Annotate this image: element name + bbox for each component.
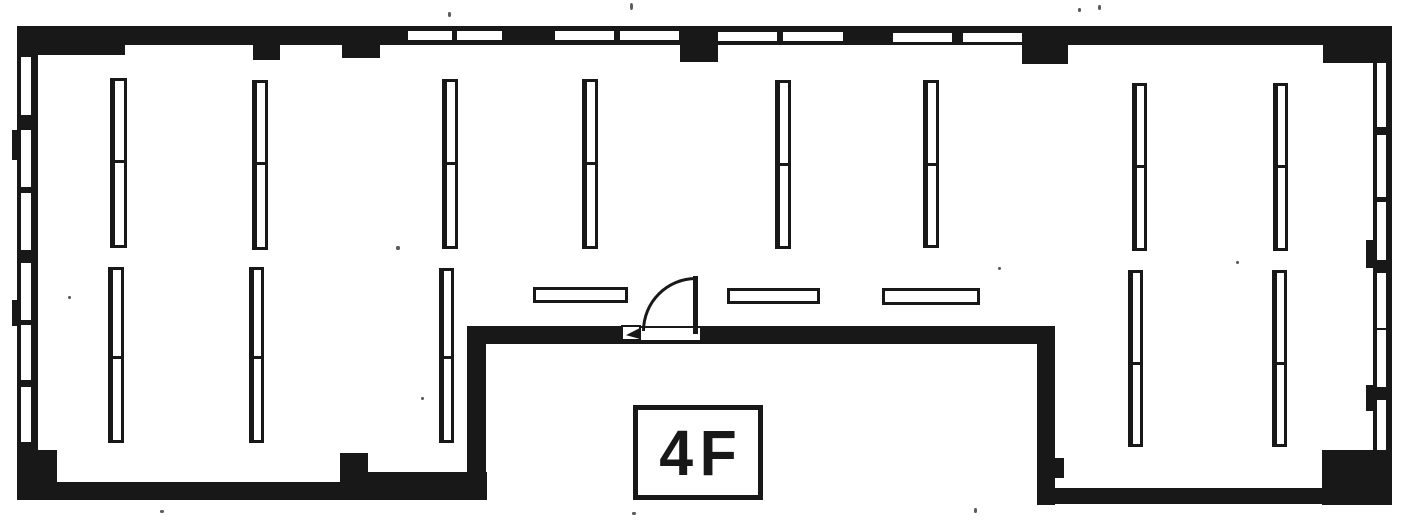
window-mullion-bar <box>439 268 454 443</box>
scan-speckle <box>396 246 400 250</box>
wall-blob <box>1366 385 1374 411</box>
partition-bar <box>727 288 820 304</box>
wall-segment <box>17 26 1392 45</box>
scan-speckle <box>421 397 424 400</box>
scan-speckle <box>68 296 71 299</box>
column-pillar <box>253 45 280 60</box>
window-slot <box>783 32 843 41</box>
mullion-divider <box>775 163 791 166</box>
wall-blob <box>12 130 18 160</box>
wall-blob <box>1366 240 1374 268</box>
window-slot <box>718 32 777 41</box>
scan-speckle <box>1098 5 1101 10</box>
wall-segment <box>1050 458 1064 478</box>
scan-speckle <box>632 512 636 515</box>
scan-speckle <box>630 3 633 10</box>
door-arc <box>642 277 696 331</box>
window-mullion-bar <box>1132 83 1147 251</box>
window-mullion-bar <box>252 80 268 250</box>
window-mullion-bar <box>442 79 458 249</box>
wall-segment <box>467 326 1055 344</box>
column-pillar <box>680 45 718 62</box>
window-slot <box>21 325 31 380</box>
window-slot <box>1377 202 1386 260</box>
window-mullion-bar <box>1272 270 1287 447</box>
wall-segment <box>467 328 486 500</box>
wall-blob <box>12 300 18 326</box>
mullion-divider <box>1132 165 1147 168</box>
mullion-divider <box>110 160 127 163</box>
mullion-divider <box>1273 165 1288 168</box>
window-mullion-bar <box>923 80 939 248</box>
window-slot <box>457 31 502 40</box>
mullion-divider <box>582 162 598 165</box>
mullion-divider <box>249 356 264 359</box>
wall-segment <box>1037 488 1392 504</box>
partition-bar <box>533 287 628 303</box>
window-slot <box>620 31 679 40</box>
scan-speckle <box>160 510 164 513</box>
window-slot <box>408 31 452 40</box>
window-slot <box>1377 135 1386 197</box>
scan-speckle <box>1236 261 1239 264</box>
mullion-divider <box>439 356 454 359</box>
mullion-divider <box>923 163 939 166</box>
mullion-divider <box>442 162 458 165</box>
window-slot <box>21 263 31 320</box>
window-mullion-bar <box>249 267 264 443</box>
window-slot <box>893 33 952 42</box>
mullion-divider <box>1128 362 1143 365</box>
mullion-divider <box>1272 362 1287 365</box>
wall-segment <box>1323 26 1392 63</box>
wall-segment <box>340 453 368 500</box>
window-slot <box>1377 400 1386 450</box>
window-slot <box>1377 63 1386 127</box>
window-slot <box>21 387 31 442</box>
window-slot <box>21 57 31 115</box>
window-slot <box>1377 330 1386 387</box>
column-pillar <box>342 45 380 58</box>
window-mullion-bar <box>1128 270 1143 447</box>
mullion-divider <box>252 162 268 165</box>
scan-speckle <box>998 267 1001 270</box>
window-mullion-bar <box>1273 83 1288 251</box>
window-mullion-bar <box>108 267 124 443</box>
scan-speckle <box>1078 8 1081 12</box>
window-slot <box>963 33 1022 42</box>
floor-plan-canvas: 4F <box>0 0 1413 526</box>
window-slot <box>21 193 31 250</box>
partition-bar <box>882 288 980 305</box>
scan-speckle <box>448 12 451 17</box>
window-slot <box>555 31 614 40</box>
column-pillar <box>1022 45 1068 64</box>
wall-segment <box>17 26 125 55</box>
wall-segment <box>1037 330 1055 505</box>
floor-label-box: 4F <box>633 405 763 500</box>
window-mullion-bar <box>775 80 791 249</box>
window-mullion-bar <box>110 78 127 248</box>
floor-label-text: 4F <box>659 421 743 485</box>
window-mullion-bar <box>582 79 598 249</box>
window-slot <box>1377 273 1386 328</box>
scan-speckle <box>974 508 977 513</box>
window-slot <box>21 130 31 187</box>
mullion-divider <box>108 356 124 359</box>
